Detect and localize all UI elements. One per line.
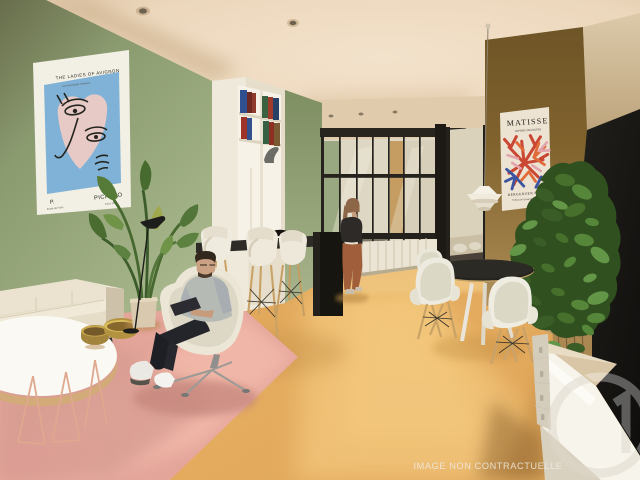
- svg-text:IMAGE NON CONTRACTUELLE: IMAGE NON CONTRACTUELLE: [413, 461, 562, 471]
